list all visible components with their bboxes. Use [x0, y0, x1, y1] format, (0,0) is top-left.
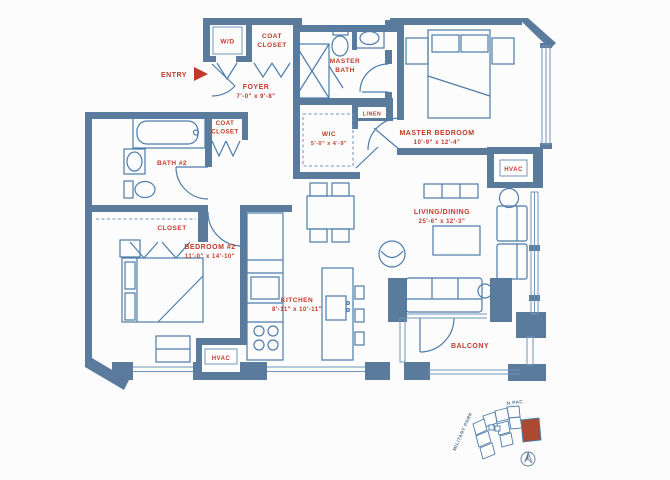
foyer-dims: 7'-0" x 9'-8"	[236, 94, 275, 100]
stool	[355, 332, 364, 345]
blanket-fold	[158, 276, 203, 322]
wic-shelving	[303, 114, 353, 166]
master-bath-door-arc	[360, 64, 388, 92]
pillow	[125, 293, 135, 320]
coat-closet-door	[272, 63, 290, 77]
site-unit	[507, 406, 520, 418]
site-street-left-label: MILITARY PARK	[452, 411, 475, 452]
entry-door-arc	[212, 86, 235, 96]
site-unit	[509, 417, 522, 429]
chair	[310, 183, 327, 196]
foyer-label: FOYER	[243, 84, 270, 91]
linen-label: LINEN	[363, 112, 382, 118]
dining-furniture	[307, 183, 354, 242]
kitchen-dims: 8'-11" x 10'-11"	[272, 307, 322, 313]
armchair	[497, 244, 527, 279]
entry-door-leaf	[212, 64, 235, 86]
compass-needle	[524, 452, 528, 463]
nightstand	[492, 38, 514, 64]
pillow	[125, 262, 135, 289]
chair	[310, 229, 327, 242]
kitchen-fixtures	[247, 213, 364, 360]
sofa-side-table	[478, 284, 492, 298]
bath2-label: BATH #2	[157, 160, 187, 167]
chair	[332, 183, 349, 196]
bath2-door-arc	[176, 167, 208, 199]
living-dining-dims: 25'-6" x 12'-3"	[419, 219, 466, 225]
island-sink	[326, 296, 346, 320]
bedroom2-door-arc	[208, 212, 242, 246]
site-highlighted-unit	[521, 418, 541, 442]
coat-closet-door	[254, 63, 272, 77]
counter	[247, 213, 283, 360]
armchair	[497, 206, 527, 241]
bed	[122, 258, 203, 322]
console	[424, 184, 478, 198]
stove-burner	[268, 326, 278, 336]
blanket-fold	[428, 76, 490, 96]
lounge-chair	[379, 241, 405, 267]
chair	[332, 229, 349, 242]
toilet-tank	[124, 181, 133, 198]
walls	[85, 18, 556, 390]
stove-burner	[254, 340, 264, 350]
master-bath-label: BATH	[335, 67, 355, 74]
kitchen-island	[322, 268, 353, 360]
site-core	[495, 426, 500, 431]
balcony-door-arc	[420, 318, 454, 352]
sink	[127, 152, 142, 171]
toilet	[332, 36, 348, 56]
entry-arrow-icon	[194, 67, 208, 81]
coat-mid-door	[226, 141, 240, 156]
floor-plan: W/D COAT CLOSET ENTRY FOYER 7'-0" x 9'-8…	[0, 0, 670, 480]
sink	[360, 32, 379, 45]
balcony-left-wall	[400, 318, 405, 362]
coat-mid-door	[212, 141, 226, 156]
toilet	[135, 182, 155, 198]
refrigerator	[251, 277, 279, 299]
nightstand	[406, 38, 428, 64]
living-dining-label: LIVING/DINING	[414, 209, 470, 216]
master-bedroom-furniture	[406, 30, 514, 118]
side-table	[500, 189, 519, 208]
site-unit	[500, 433, 513, 447]
master-bedroom-dims: 10'-9" x 12'-4"	[414, 140, 461, 146]
hvac-right-label: HVAC	[504, 167, 523, 173]
dining-table	[307, 196, 354, 229]
coat-closet-mid-label: CLOSET	[211, 130, 238, 136]
coat-closet-top-label: COAT	[262, 33, 282, 40]
site-core	[489, 425, 494, 430]
hvac-bottom-label: HVAC	[212, 356, 231, 362]
pillow	[461, 35, 488, 52]
stove-burner	[254, 326, 264, 336]
bedroom2-dims: 11'-0" x 14'-10"	[185, 254, 235, 260]
site-street-top-label: N.PAC	[506, 399, 523, 407]
balcony-label: BALCONY	[451, 343, 489, 350]
coat-closet-mid-label: COAT	[216, 121, 235, 127]
wic-label: WIC	[322, 131, 336, 138]
wd-label: W/D	[220, 39, 234, 46]
stove-burner	[268, 340, 278, 350]
bathtub	[137, 121, 198, 144]
bedroom2-label: BEDROOM #2	[184, 244, 235, 251]
site-unit	[495, 408, 509, 422]
stool	[355, 309, 364, 322]
wic-door-leaf	[356, 147, 378, 168]
site-map	[473, 406, 541, 466]
floor-plan-page: W/D COAT CLOSET ENTRY FOYER 7'-0" x 9'-8…	[0, 0, 670, 480]
closet-label: CLOSET	[157, 225, 186, 232]
balcony-right-wall	[527, 337, 533, 365]
pillow	[432, 35, 459, 52]
wic-dims: 5'-0" x 4'-9"	[311, 141, 347, 147]
closet-door	[130, 242, 158, 258]
master-bedroom-door-leaf	[374, 128, 400, 150]
coat-closet-top-label: CLOSET	[257, 42, 286, 49]
master-bath-label: MASTER	[330, 58, 360, 65]
bath2-fixtures	[124, 117, 205, 198]
coffee-table	[433, 226, 480, 255]
kitchen-label: KITCHEN	[281, 297, 313, 304]
entry-label: ENTRY	[161, 72, 187, 79]
stool	[355, 286, 364, 299]
compass-needle	[528, 452, 532, 463]
master-bedroom-label: MASTER BEDROOM	[399, 130, 474, 137]
sofa	[406, 278, 482, 312]
